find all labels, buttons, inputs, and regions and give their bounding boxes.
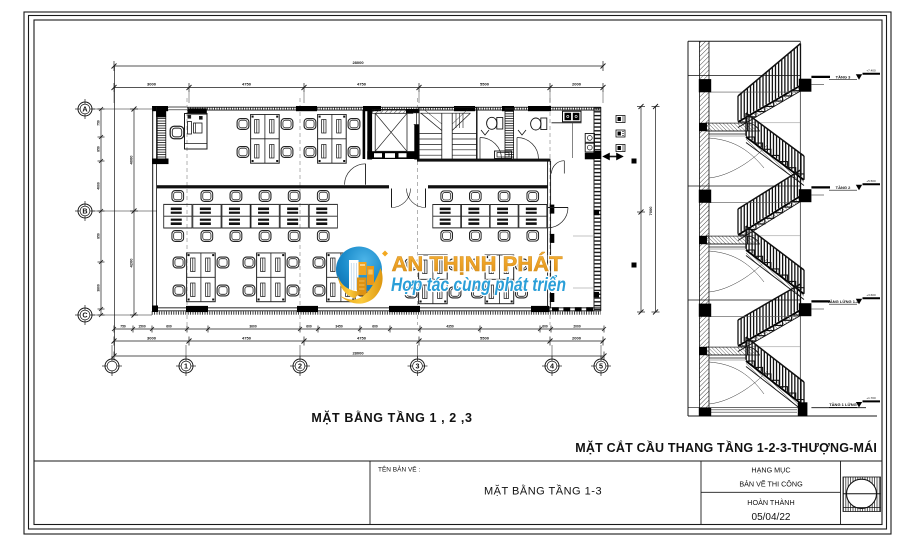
svg-text:28000: 28000: [352, 350, 364, 355]
svg-text:3600: 3600: [249, 325, 257, 329]
svg-text:4750: 4750: [242, 336, 252, 341]
svg-text:5500: 5500: [480, 336, 490, 341]
svg-text:2: 2: [298, 362, 302, 371]
svg-text:TẦNG 2: TẦNG 2: [836, 185, 851, 190]
svg-text:AN THỊNH PHÁT: AN THỊNH PHÁT: [392, 251, 563, 276]
svg-text:4750: 4750: [357, 82, 367, 87]
svg-text:MẶT BẰNG TẦNG 1-3: MẶT BẰNG TẦNG 1-3: [484, 485, 602, 498]
svg-text:600: 600: [542, 325, 548, 329]
svg-text:2000: 2000: [573, 325, 581, 329]
svg-text:4350: 4350: [446, 325, 454, 329]
svg-text:850: 850: [97, 146, 101, 152]
svg-text:7000: 7000: [648, 206, 653, 216]
svg-text:C: C: [82, 311, 87, 320]
svg-text:4000: 4000: [97, 182, 101, 190]
svg-text:MẶT BẰNG TẦNG 1 , 2 ,3: MẶT BẰNG TẦNG 1 , 2 ,3: [311, 410, 472, 425]
svg-text:4: 4: [550, 362, 554, 371]
svg-text:5: 5: [599, 362, 603, 371]
svg-text:TẦNG LỬNG 1-2: TẦNG LỬNG 1-2: [827, 299, 859, 304]
svg-text:TÊN BẢN VẼ :: TÊN BẢN VẼ :: [378, 465, 420, 474]
svg-text:4000: 4000: [129, 155, 134, 165]
svg-text:TẦNG 1 LỬNG: TẦNG 1 LỬNG: [829, 402, 857, 407]
svg-text:1500: 1500: [138, 325, 146, 329]
svg-text:1: 1: [184, 362, 188, 371]
svg-text:+1.700: +1.700: [866, 396, 876, 400]
svg-text:2000: 2000: [572, 82, 582, 87]
svg-text:600: 600: [306, 325, 312, 329]
svg-text:750: 750: [97, 120, 101, 126]
svg-text:+5.500: +5.500: [866, 179, 876, 183]
svg-text:3800: 3800: [97, 284, 101, 292]
svg-text:3450: 3450: [335, 325, 343, 329]
svg-text:B: B: [82, 207, 87, 216]
svg-text:A: A: [82, 105, 87, 114]
svg-text:3: 3: [416, 362, 420, 371]
svg-text:750: 750: [120, 325, 126, 329]
svg-text:BẢN VẼ THI CÔNG: BẢN VẼ THI CÔNG: [739, 480, 803, 489]
svg-text:4200: 4200: [129, 258, 134, 268]
svg-text:2000: 2000: [572, 336, 582, 341]
svg-text:600: 600: [166, 325, 172, 329]
svg-text:+7.400: +7.400: [866, 68, 876, 72]
svg-text:4750: 4750: [242, 82, 252, 87]
svg-text:3000: 3000: [147, 336, 157, 341]
svg-text:5500: 5500: [480, 82, 490, 87]
svg-text:HẠNG MỤC: HẠNG MỤC: [751, 466, 790, 475]
svg-text:05/04/22: 05/04/22: [752, 512, 791, 523]
svg-text:28000: 28000: [352, 60, 364, 65]
svg-text:600: 600: [372, 325, 378, 329]
svg-text:+3.600: +3.600: [866, 293, 876, 297]
svg-text:TẦNG 3: TẦNG 3: [836, 74, 851, 79]
svg-text:4750: 4750: [357, 336, 367, 341]
svg-text:3000: 3000: [147, 82, 157, 87]
svg-text:Hợp tác cùng phát triển: Hợp tác cùng phát triển: [391, 275, 566, 296]
svg-text:850: 850: [97, 233, 101, 239]
svg-text:HOÀN THÀNH: HOÀN THÀNH: [747, 498, 794, 507]
svg-text:MẶT CẮT CẦU THANG TẦNG 1-2-3-T: MẶT CẮT CẦU THANG TẦNG 1-2-3-THƯỢNG-MÁI: [575, 440, 877, 455]
